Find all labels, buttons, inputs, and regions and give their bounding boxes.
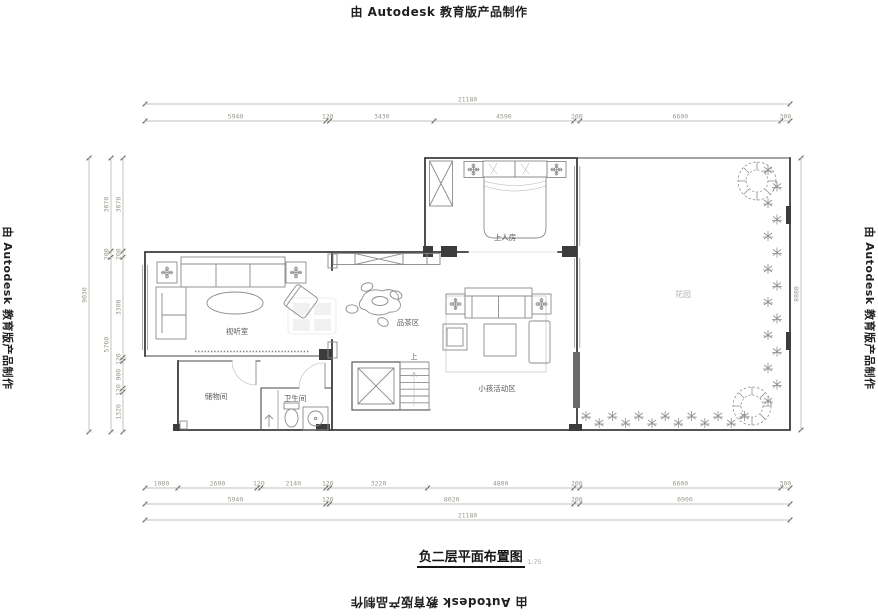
shrub-icon [594, 418, 604, 428]
dim-label: 300 [780, 113, 792, 121]
columns [173, 206, 791, 431]
drawing-title: 负二层平面布置图 [417, 550, 525, 568]
dim-label: 5940 [228, 496, 244, 504]
tree-icon [733, 387, 771, 425]
dim-label: 4590 [496, 113, 512, 121]
dim-label: 8880 [793, 286, 801, 302]
av-side-table-right [286, 262, 306, 283]
kids-chair [443, 324, 467, 350]
floor-plan: 上人房 视听室 品茶区 小孩活动区 卫生间 储物间 花园 上 211805940… [0, 0, 878, 616]
shrub-icon [772, 347, 782, 357]
dim-label: 3220 [371, 480, 387, 488]
shrub-icon [763, 231, 773, 241]
coffee-table-oval [207, 292, 263, 314]
dim-label: 200 [571, 113, 583, 121]
dimension-chain: 21180 [143, 96, 793, 108]
dim-label: 6600 [673, 113, 689, 121]
dim-label: 200 [571, 480, 583, 488]
dim-label: 300 [780, 480, 792, 488]
room-label-tea-area: 品茶区 [397, 317, 420, 327]
shrub-icon [763, 363, 773, 373]
shrub-icon [772, 248, 782, 258]
room-label-bathroom: 卫生间 [284, 393, 307, 403]
dim-label: 200 [571, 496, 583, 504]
dimension-chain: 21180 [143, 512, 793, 524]
room-label-storage: 储物间 [205, 391, 228, 401]
dimension-chain: 307020033001209001201320 [115, 156, 127, 435]
shrub-icon [647, 418, 657, 428]
shrub-icon [673, 418, 683, 428]
dim-label: 6900 [677, 496, 693, 504]
dim-label: 3430 [374, 113, 390, 121]
dim-label: 2600 [210, 480, 226, 488]
drawing-canvas: 由 Autodesk 教育版产品制作 由 Autodesk 教育版产品制作 由 … [0, 0, 878, 616]
shrub-icon [772, 380, 782, 390]
wardrobe [430, 161, 453, 206]
dim-label: 3300 [115, 299, 123, 315]
kids-side-table-right [532, 294, 551, 314]
shrub-icon [634, 411, 644, 421]
bed [483, 161, 547, 238]
dim-label: 5760 [103, 337, 111, 353]
dim-label: 120 [115, 384, 123, 396]
storage-drain-box [180, 421, 187, 429]
dim-label: 120 [322, 113, 334, 121]
dimension-chain: 9030 [81, 156, 93, 435]
room-label-bedroom: 上人房 [494, 232, 517, 242]
dim-label: 2140 [285, 480, 301, 488]
drawing-scale: 1:75 [528, 559, 541, 566]
kids-lounger [529, 321, 550, 363]
floor-drain [265, 415, 273, 427]
title-block: 负二层平面布置图1:75 [40, 546, 878, 566]
shrub-icon [772, 314, 782, 324]
storage-door [232, 361, 256, 385]
shrub-icon [713, 411, 723, 421]
kids-side-table-left [446, 294, 465, 314]
shrub-icon [763, 330, 773, 340]
walls [145, 158, 790, 430]
dim-label: 120 [322, 496, 334, 504]
nightstand-left [464, 162, 483, 178]
watermark-logo [288, 298, 336, 334]
shrub-icon [581, 411, 591, 421]
dim-label: 1320 [115, 404, 123, 420]
dim-label: 200 [115, 248, 123, 260]
elevator [352, 362, 400, 410]
dimension-chain: 594012080202006900 [143, 496, 793, 508]
dim-label: 200 [103, 248, 111, 260]
dim-label: 3070 [103, 197, 111, 213]
shrub-icon [621, 418, 631, 428]
av-sofa [181, 257, 285, 287]
dimension-chain: 30702005760 [103, 156, 115, 435]
dimension-lines: 2118059401203430459020066003001080260012… [81, 96, 805, 524]
kids-rug [446, 296, 546, 372]
shrub-icon [687, 411, 697, 421]
tree-icon [738, 162, 776, 200]
bathroom-door [299, 363, 325, 388]
bar-cabinet [328, 254, 440, 359]
shrub-icon [607, 411, 617, 421]
stone-tea-table [346, 281, 403, 328]
chaise [156, 287, 186, 339]
dim-label: 9030 [81, 287, 89, 303]
dim-label: 120 [253, 480, 265, 488]
kids-table [484, 324, 516, 356]
windows [143, 166, 580, 350]
dim-label: 5940 [228, 113, 244, 121]
dim-label: 6600 [673, 480, 689, 488]
shrub-icon [763, 297, 773, 307]
shrub-icon [772, 215, 782, 225]
shrub-icon [772, 281, 782, 291]
room-label-kids-area: 小孩活动区 [478, 383, 516, 393]
shrub-icon [700, 418, 710, 428]
dimension-chain: 8880 [793, 156, 805, 433]
shrub-icon [763, 396, 773, 406]
toilet [284, 403, 299, 427]
av-side-table-left [157, 262, 177, 283]
room-label-garden: 花园 [675, 289, 691, 299]
shrub-icon [726, 418, 736, 428]
shrub-icon [763, 198, 773, 208]
dim-label: 1080 [154, 480, 170, 488]
dim-label: 120 [322, 480, 334, 488]
dimension-chain: 108026001202140120322048002006600300 [143, 480, 793, 492]
stair-direction-label: 上 [411, 352, 418, 361]
shrub-icon [763, 264, 773, 274]
shrub-icon [660, 411, 670, 421]
dim-label: 3070 [115, 197, 123, 213]
dim-label: 8020 [444, 496, 460, 504]
dim-label: 21180 [458, 96, 478, 104]
room-label-av-room: 视听室 [226, 326, 249, 336]
dim-label: 900 [115, 369, 123, 381]
dimension-chain: 5940120343045902006600300 [143, 113, 793, 125]
staircase [400, 362, 429, 410]
dim-label: 4800 [493, 480, 509, 488]
dim-label: 21180 [458, 512, 478, 520]
kids-sofa [465, 288, 532, 318]
dim-label: 120 [115, 353, 123, 365]
nightstand-right [547, 162, 566, 178]
